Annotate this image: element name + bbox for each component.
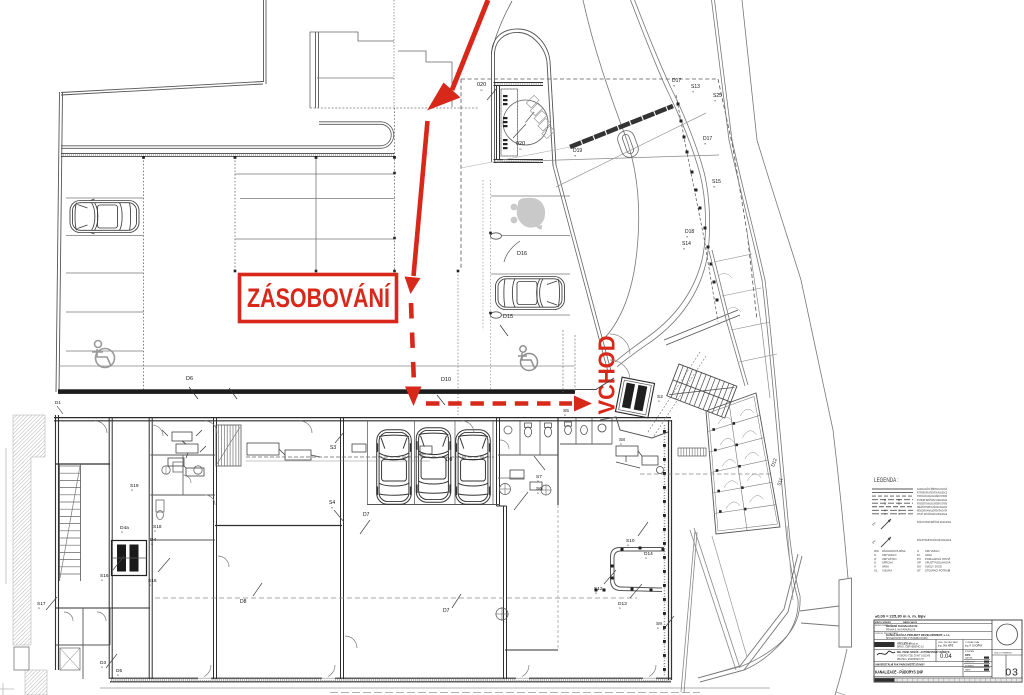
svg-text:m: m: [149, 584, 151, 587]
svg-text:m: m: [564, 414, 566, 417]
svg-text:D19: D19: [573, 148, 582, 154]
svg-text:S25: S25: [713, 93, 722, 99]
svg-text:ZÁSOBOVÁNÍ: ZÁSOBOVÁNÍ: [247, 283, 391, 313]
svg-text:m: m: [619, 607, 621, 610]
svg-text:V: V: [898, 512, 900, 516]
svg-text:m: m: [620, 443, 622, 446]
svg-text:INVESTOR: INVESTOR: [875, 625, 887, 627]
svg-text:V OBORU TZB, ČKAIT 1002345: V OBORU TZB, ČKAIT 1002345: [897, 655, 931, 658]
svg-text:PARE: PARE: [965, 669, 971, 672]
svg-text:D16: D16: [517, 251, 527, 257]
svg-text:m: m: [537, 492, 539, 495]
svg-text:VANA: VANA: [882, 565, 889, 569]
svg-text:m: m: [627, 544, 629, 547]
svg-text:PRAHA 6, EVROPSKÁ 37: PRAHA 6, EVROPSKÁ 37: [897, 658, 925, 661]
svg-text:m: m: [38, 607, 40, 610]
svg-text:m: m: [673, 85, 675, 88]
svg-text:ČÍSLO VYKRESU: ČÍSLO VYKRESU: [994, 652, 1012, 655]
svg-text:D18: D18: [685, 229, 694, 235]
svg-text:D10: D10: [441, 377, 451, 383]
svg-text:m: m: [657, 627, 659, 630]
svg-text:D17: D17: [672, 78, 681, 84]
svg-text:m: m: [117, 674, 119, 677]
svg-text:S13: S13: [691, 84, 700, 90]
svg-text:BRNO, ČERVENÉHO 12: BRNO, ČERVENÉHO 12: [897, 646, 924, 649]
svg-text:UNIVERZITÁLNÍ FAK PARKOVIŠTĚ S: UNIVERZITÁLNÍ FAK PARKOVIŠTĚ STAVBY: [875, 663, 925, 666]
svg-text:VCHOD: VCHOD: [594, 336, 620, 415]
svg-text:03: 03: [1005, 667, 1018, 679]
svg-text:ST: ST: [917, 569, 921, 573]
svg-text:D17: D17: [703, 136, 712, 142]
svg-text:D1: D1: [55, 400, 61, 405]
svg-text:m: m: [154, 530, 156, 533]
svg-text:m: m: [645, 557, 647, 560]
svg-text:m: m: [713, 186, 715, 189]
svg-text:m: m: [686, 236, 688, 239]
svg-text:SPOLEČNOST PRO VYSTAVBU DOMŮ: SPOLEČNOST PRO VYSTAVBU DOMŮ: [886, 637, 928, 640]
svg-text:PRAHA 5, NA FARKÁNU III.: PRAHA 5, NA FARKÁNU III.: [886, 628, 916, 631]
svg-text:S14: S14: [682, 241, 691, 247]
svg-text:m: m: [331, 507, 333, 510]
svg-text:m: m: [131, 489, 133, 492]
svg-text:Ing. P. DVOŘÁK: Ing. P. DVOŘÁK: [965, 645, 983, 648]
svg-text:m: m: [151, 543, 153, 546]
svg-text:STOUPACÍ POTRUBÍ: STOUPACÍ POTRUBÍ: [925, 569, 951, 573]
svg-text:m: m: [692, 91, 694, 94]
svg-text:SVISLY SVOD: SVISLY SVOD: [925, 565, 942, 569]
svg-text:ODPOV. PROJEKTANT: ODPOV. PROJEKTANT: [875, 632, 899, 635]
svg-text:D7: D7: [443, 608, 450, 614]
svg-text:UMYVADLO: UMYVADLO: [882, 553, 896, 557]
svg-text:m: m: [704, 143, 706, 146]
svg-text:S4: S4: [329, 500, 335, 506]
svg-text:ŘEŠENÍ KANALIZACE: ŘEŠENÍ KANALIZACE: [886, 623, 918, 628]
svg-text:DATUM: DATUM: [965, 657, 973, 660]
svg-text:±0,00 = 225,30 m n. m. Bpv: ±0,00 = 225,30 m n. m. Bpv: [875, 614, 926, 619]
svg-text:V: V: [884, 512, 886, 516]
svg-text:m: m: [658, 400, 660, 403]
svg-text:S3: S3: [330, 445, 336, 451]
svg-text:MĚŘÍTKO: MĚŘÍTKO: [965, 661, 975, 664]
svg-text:D9: D9: [446, 457, 453, 463]
svg-text:VANA: VANA: [925, 553, 932, 557]
svg-text:m: m: [101, 666, 103, 669]
svg-text:UMYVÁTKO: UMYVÁTKO: [882, 557, 897, 561]
svg-text:m: m: [537, 480, 539, 483]
svg-text:DPS: DPS: [965, 653, 971, 657]
svg-text:UMYVADLO: UMYVADLO: [925, 549, 939, 553]
svg-text:D7: D7: [363, 512, 370, 518]
svg-text:m: m: [714, 100, 716, 103]
svg-text:0.04: 0.04: [940, 654, 952, 660]
svg-text:ZÁCHODOVÁ MÍSA: ZÁCHODOVÁ MÍSA: [882, 549, 906, 553]
svg-text:D6: D6: [186, 376, 193, 382]
svg-text:D15: D15: [503, 314, 513, 320]
svg-text:VLEVKA: VLEVKA: [882, 569, 892, 573]
svg-text:m: m: [595, 592, 597, 595]
svg-text:LEGENDA :: LEGENDA :: [874, 478, 899, 484]
svg-text:D8: D8: [240, 599, 247, 605]
svg-text:m: m: [574, 155, 576, 158]
svg-text:m: m: [121, 531, 123, 534]
svg-text:FORMÁT: FORMÁT: [965, 665, 975, 668]
svg-text:m: m: [683, 248, 685, 251]
svg-text:m: m: [101, 579, 103, 582]
svg-text:STUPEŇ: STUPEŇ: [965, 650, 974, 653]
svg-text:VL: VL: [874, 569, 878, 573]
svg-text:SPRCHA: SPRCHA: [882, 561, 893, 565]
svg-text:KANALIZACE - PŮDORYS 1NP: KANALIZACE - PŮDORYS 1NP: [875, 668, 923, 675]
svg-text:Ing. JAN KŘÍŽ: Ing. JAN KŘÍŽ: [938, 645, 954, 648]
svg-text:S15: S15: [712, 179, 721, 185]
